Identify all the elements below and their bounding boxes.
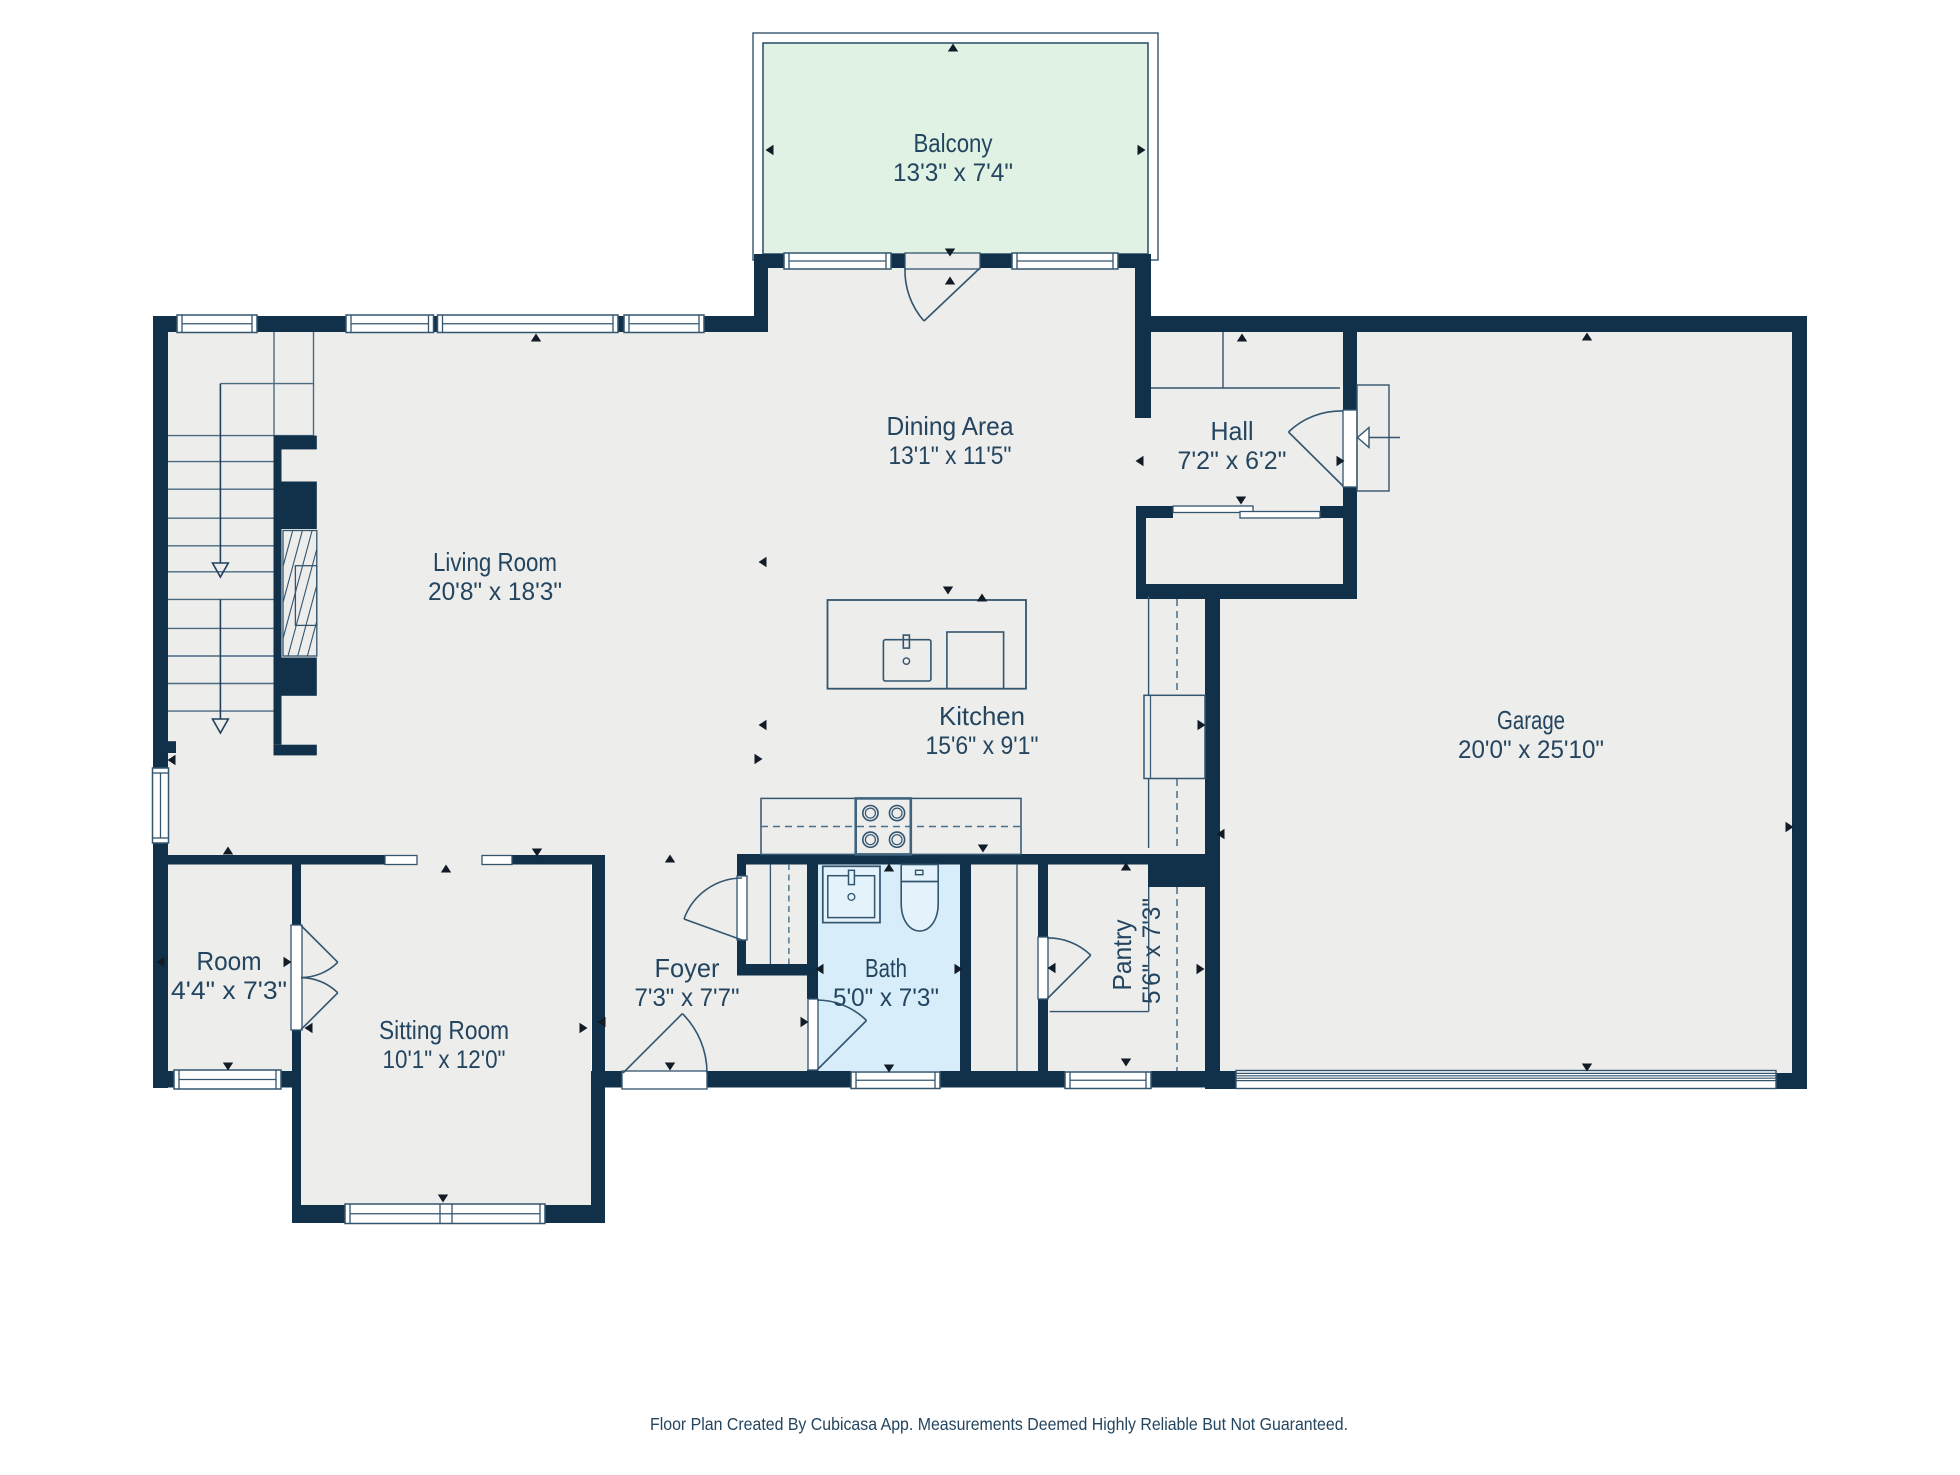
svg-text:Sitting Room: Sitting Room <box>379 1015 509 1045</box>
svg-text:20'0" x 25'10": 20'0" x 25'10" <box>1458 736 1604 764</box>
svg-text:Hall: Hall <box>1211 416 1254 446</box>
svg-text:10'1" x 12'0": 10'1" x 12'0" <box>383 1046 506 1074</box>
svg-text:15'6" x 9'1": 15'6" x 9'1" <box>926 732 1039 760</box>
svg-text:7'3" x 7'7": 7'3" x 7'7" <box>635 984 740 1012</box>
svg-text:Living Room: Living Room <box>433 547 557 577</box>
svg-text:Room: Room <box>197 946 262 976</box>
svg-text:13'1" x 11'5": 13'1" x 11'5" <box>889 442 1012 470</box>
svg-text:Bath: Bath <box>865 953 907 983</box>
svg-text:5'6" x 7'3": 5'6" x 7'3" <box>1138 898 1166 1004</box>
svg-text:13'3" x 7'4": 13'3" x 7'4" <box>893 159 1013 187</box>
svg-text:Dining Area: Dining Area <box>887 411 1015 441</box>
svg-text:Floor Plan Created By Cubicasa: Floor Plan Created By Cubicasa App. Meas… <box>650 1414 1348 1434</box>
svg-text:Pantry: Pantry <box>1107 920 1137 991</box>
svg-text:Balcony: Balcony <box>914 128 993 158</box>
svg-text:Foyer: Foyer <box>655 953 720 983</box>
svg-text:Garage: Garage <box>1497 705 1565 735</box>
svg-text:5'0" x 7'3": 5'0" x 7'3" <box>833 984 939 1012</box>
svg-text:Kitchen: Kitchen <box>939 701 1025 731</box>
svg-text:4'4" x 7'3": 4'4" x 7'3" <box>171 977 287 1005</box>
svg-text:7'2" x 6'2": 7'2" x 6'2" <box>1178 447 1287 475</box>
svg-text:20'8" x 18'3": 20'8" x 18'3" <box>428 578 562 606</box>
